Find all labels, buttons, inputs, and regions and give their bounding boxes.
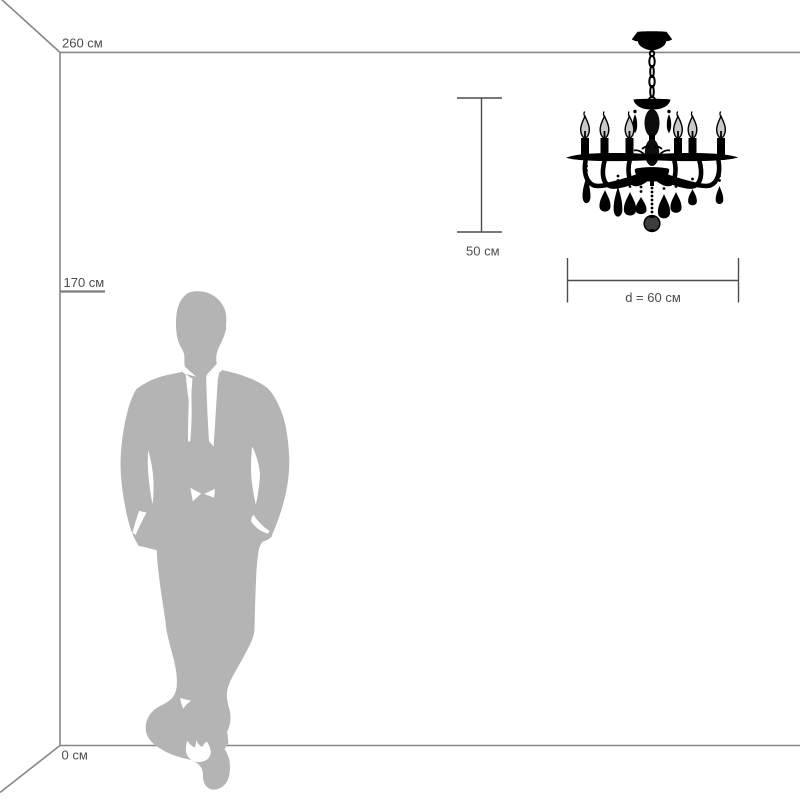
svg-text:170 см: 170 см [64, 275, 105, 290]
svg-text:260 см: 260 см [62, 36, 103, 51]
svg-text:0 см: 0 см [62, 748, 88, 763]
svg-text:d = 60 см: d = 60 см [625, 290, 681, 305]
svg-text:50 см: 50 см [466, 244, 500, 259]
